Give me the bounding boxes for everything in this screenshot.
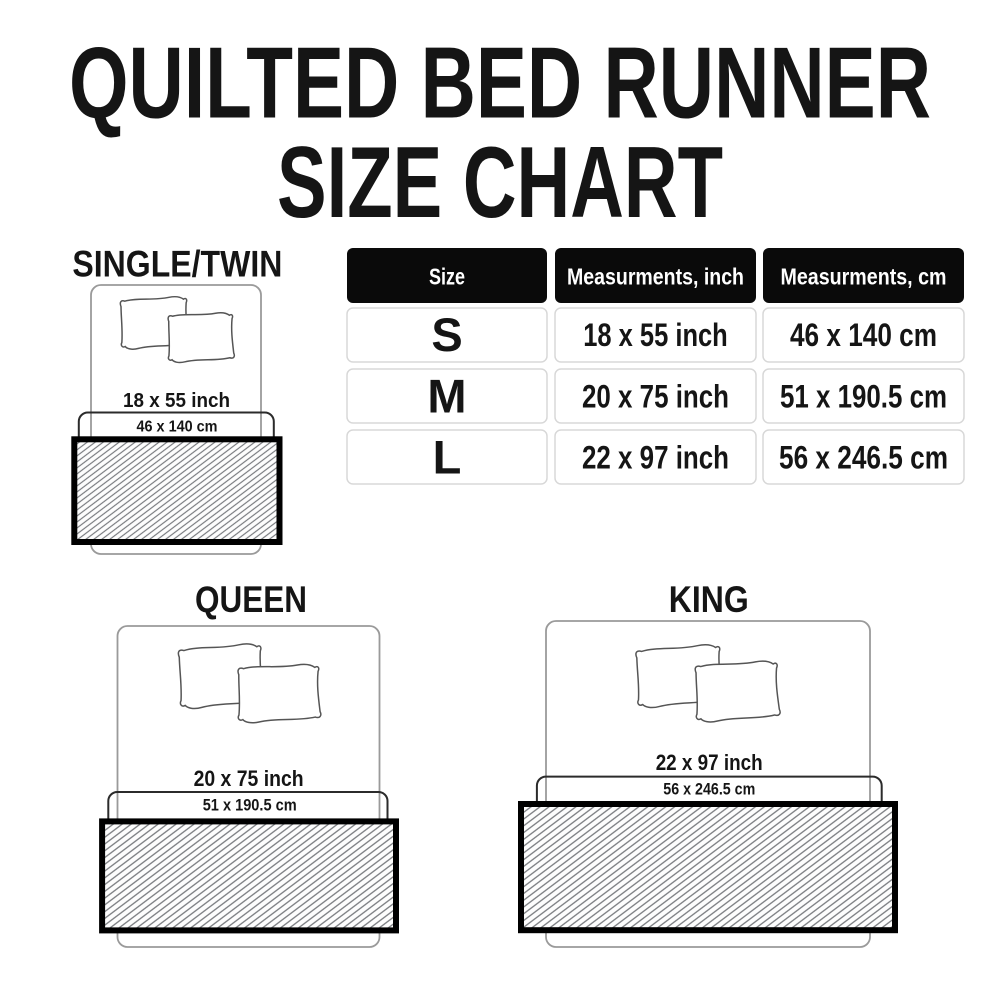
svg-text:46 x 140 cm: 46 x 140 cm	[790, 317, 937, 353]
svg-text:46 x 140 cm: 46 x 140 cm	[137, 418, 218, 435]
svg-text:56 x 246.5 cm: 56 x 246.5 cm	[779, 440, 948, 476]
svg-text:20 x 75 inch: 20 x 75 inch	[194, 766, 304, 791]
svg-text:Measurments, inch: Measurments, inch	[567, 264, 744, 290]
svg-text:18 x 55 inch: 18 x 55 inch	[583, 317, 728, 353]
svg-text:56 x 246.5 cm: 56 x 246.5 cm	[663, 779, 755, 798]
svg-text:51 x 190.5 cm: 51 x 190.5 cm	[203, 796, 297, 815]
svg-text:51 x 190.5 cm: 51 x 190.5 cm	[780, 379, 947, 415]
svg-text:QUILTED BED RUNNER: QUILTED BED RUNNER	[69, 28, 931, 140]
svg-text:Size: Size	[429, 264, 465, 290]
svg-text:22 x 97 inch: 22 x 97 inch	[656, 750, 763, 775]
svg-text:SINGLE/TWIN: SINGLE/TWIN	[72, 243, 282, 284]
svg-text:22 x 97 inch: 22 x 97 inch	[582, 440, 729, 476]
svg-text:QUEEN: QUEEN	[195, 579, 307, 620]
svg-text:M: M	[427, 370, 466, 423]
svg-text:S: S	[431, 308, 462, 361]
svg-text:L: L	[433, 431, 462, 484]
svg-text:18 x 55 inch: 18 x 55 inch	[123, 390, 230, 412]
svg-text:SIZE CHART: SIZE CHART	[277, 127, 723, 239]
svg-text:20 x 75 inch: 20 x 75 inch	[582, 379, 729, 415]
svg-text:Measurments, cm: Measurments, cm	[781, 264, 947, 290]
svg-text:KING: KING	[669, 579, 749, 620]
